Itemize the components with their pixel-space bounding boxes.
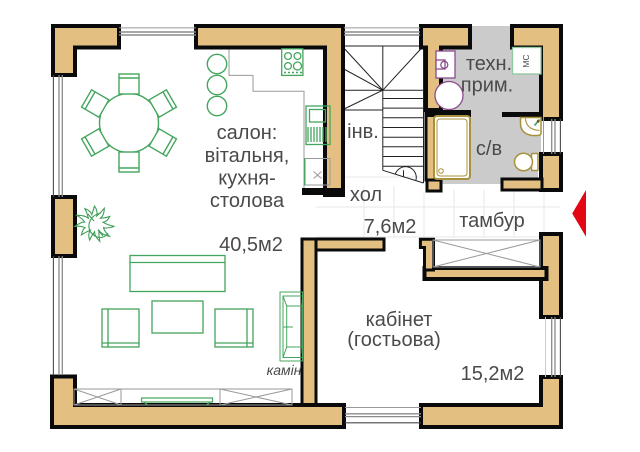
svg-text:15,2м2: 15,2м2 bbox=[461, 363, 525, 385]
svg-text:прим.: прим. bbox=[461, 75, 513, 97]
svg-text:7,6м2: 7,6м2 bbox=[364, 216, 417, 238]
svg-text:(гостьова): (гостьова) bbox=[347, 329, 441, 351]
svg-text:с/в: с/в bbox=[476, 138, 502, 160]
svg-text:кабінет: кабінет bbox=[366, 309, 433, 331]
svg-text:тамбур: тамбур bbox=[459, 210, 525, 232]
svg-text:40,5м2: 40,5м2 bbox=[219, 234, 283, 256]
svg-text:вітальня,: вітальня, bbox=[205, 145, 290, 167]
svg-text:кухня-: кухня- bbox=[218, 168, 276, 190]
svg-text:МС: МС bbox=[521, 54, 531, 67]
svg-text:столова: столова bbox=[210, 190, 285, 212]
svg-text:салон:: салон: bbox=[217, 122, 278, 144]
svg-text:хол: хол bbox=[350, 184, 382, 206]
svg-text:інв.: інв. bbox=[347, 121, 379, 143]
svg-text:техн.: техн. bbox=[466, 53, 512, 75]
svg-text:камін: камін bbox=[267, 362, 302, 378]
